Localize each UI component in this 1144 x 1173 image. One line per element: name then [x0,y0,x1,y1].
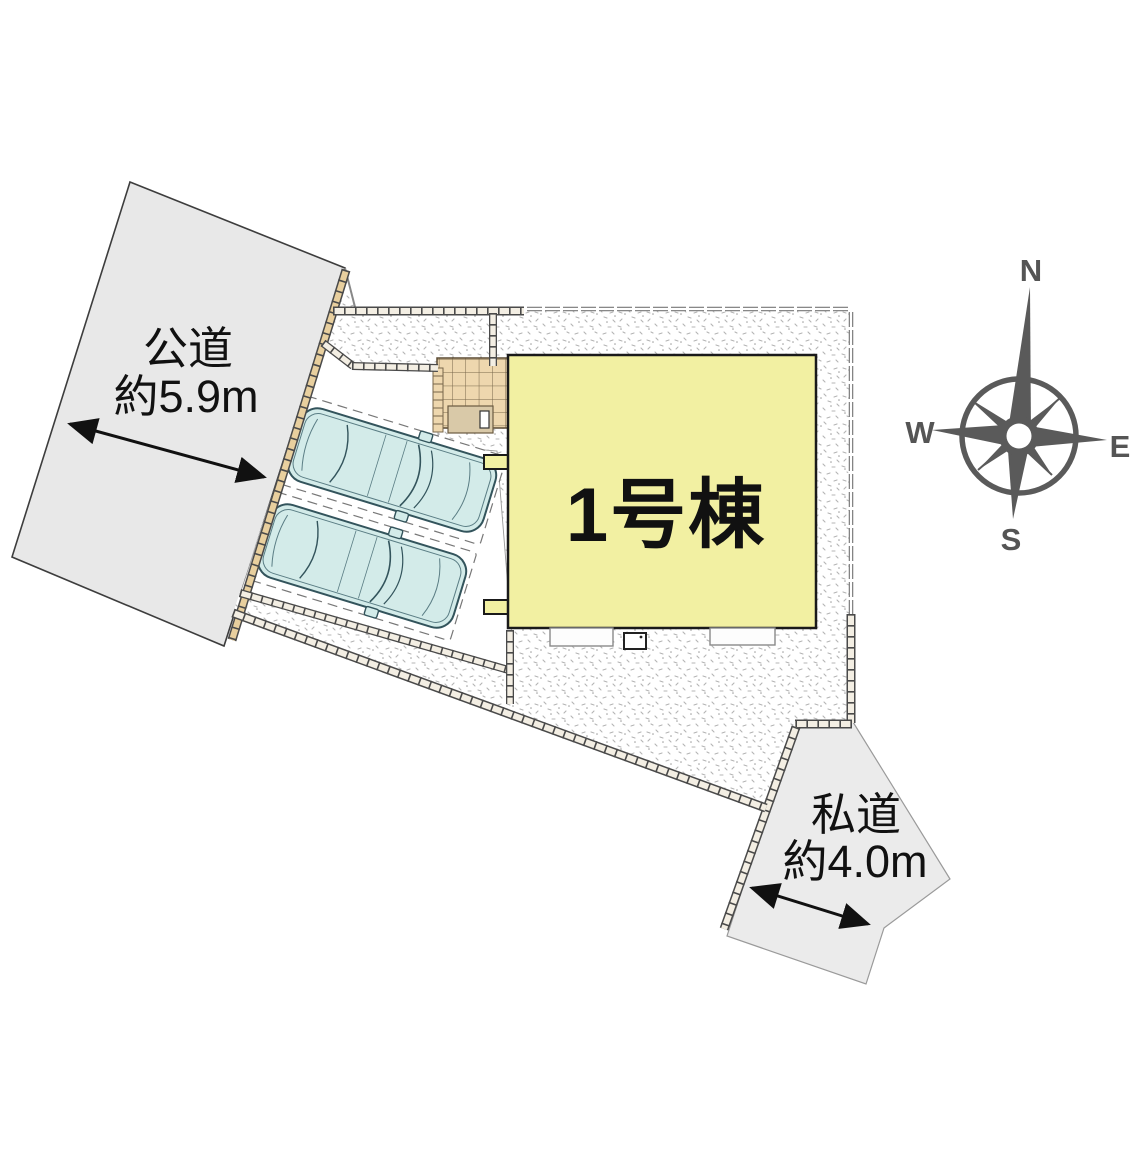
utility-box [624,633,646,649]
building-vent-left-upper [484,455,510,469]
compass-label-south: S [1001,522,1022,557]
private-road-name-label: 私道 [811,789,901,840]
compass-label-east: E [1110,429,1131,464]
public-road-name-label: 公道 [143,323,233,374]
building-vent-left-lower [484,600,510,614]
compass-label-north: N [1020,253,1042,288]
public-road-width-label: 約5.9m [113,371,258,422]
terrace-left [550,628,613,646]
entrance-steps [433,368,443,432]
compass-hub-center [1007,424,1032,449]
site-plan-page: 1号棟 [0,0,1144,1173]
terrace-right [710,628,775,645]
private-road-width-label: 約4.0m [782,836,927,887]
building-label: 1号棟 [566,473,766,558]
entrance-door [480,411,489,428]
compass-label-west: W [905,415,935,450]
site-plan-svg: 1号棟 [0,0,1144,1173]
